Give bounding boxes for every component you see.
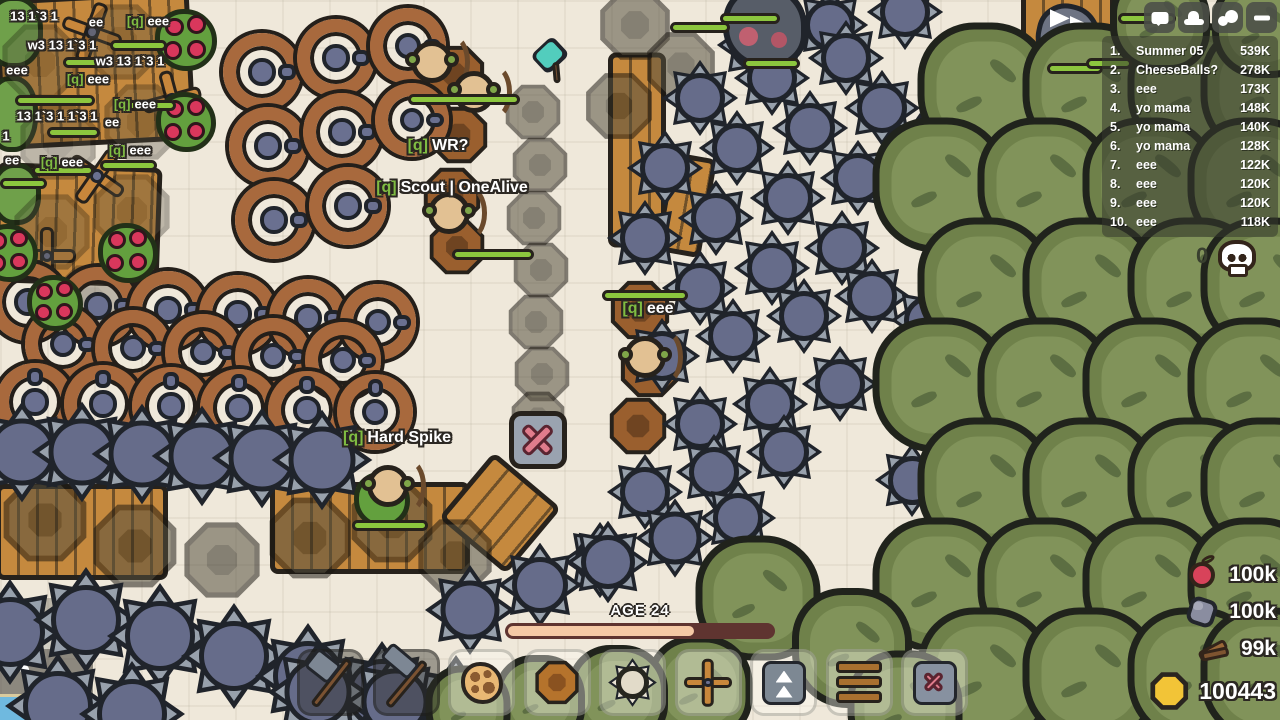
health-bar bbox=[110, 40, 167, 51]
resource-counters: 100k100k99k100443 bbox=[1149, 558, 1276, 713]
player-name-label: 1 bbox=[2, 129, 9, 144]
stone-icon bbox=[1185, 595, 1219, 629]
planks-icon bbox=[834, 659, 884, 707]
player-name-label: ee bbox=[89, 15, 103, 30]
trapx bbox=[509, 411, 567, 469]
player-name-label: [q]Hard Spike bbox=[343, 429, 451, 447]
hat-icon bbox=[1183, 9, 1205, 27]
hotbar-slot-hammer[interactable] bbox=[373, 649, 440, 716]
leaderboard-row: 3.eee173K bbox=[1110, 79, 1270, 98]
spike bbox=[697, 300, 769, 372]
resource-gold: 100443 bbox=[1149, 669, 1276, 713]
boost-icon bbox=[762, 661, 806, 705]
health-bar bbox=[0, 178, 47, 189]
gold-count: 100443 bbox=[1199, 678, 1276, 705]
woodwall-icon bbox=[534, 660, 580, 706]
axeitem bbox=[523, 33, 581, 91]
leaderboard-row: 2.CheeseBalls?278K bbox=[1110, 60, 1270, 79]
kill-count: 0 bbox=[1196, 243, 1208, 269]
hotbar-slot-spike[interactable] bbox=[599, 649, 666, 716]
player bbox=[622, 334, 668, 380]
resource-food: 100k bbox=[1185, 558, 1276, 592]
resource-wood: 99k bbox=[1197, 632, 1276, 666]
player-name-label: 13 1`3 1 1`3 1 bbox=[17, 109, 98, 124]
leaderboard-row: 6.yo mama128K bbox=[1110, 136, 1270, 155]
health-bar bbox=[720, 13, 780, 24]
player-name-label: [q]eee bbox=[109, 143, 151, 158]
player-name-label: w3 13 1`3 1 bbox=[96, 54, 165, 69]
player-name-label: ee bbox=[5, 153, 19, 168]
bush bbox=[0, 224, 38, 282]
gold-icon bbox=[1149, 671, 1189, 711]
cannon bbox=[297, 19, 375, 97]
food-count: 100k bbox=[1229, 563, 1276, 587]
health-bar bbox=[743, 58, 800, 69]
cannon bbox=[229, 107, 307, 185]
leaderboard-row: 9.eee120K bbox=[1110, 193, 1270, 212]
player bbox=[365, 463, 411, 509]
health-bar bbox=[670, 22, 730, 33]
hotbar-slot-xtrap[interactable] bbox=[901, 649, 968, 716]
skull-icon bbox=[1218, 240, 1256, 272]
age-label: AGE 24 bbox=[505, 602, 775, 619]
health-bar bbox=[352, 520, 428, 531]
player bbox=[409, 39, 455, 85]
health-bar bbox=[47, 127, 100, 138]
food-icon bbox=[1185, 558, 1219, 592]
player-name-label: [q]eee bbox=[41, 155, 83, 170]
spike bbox=[748, 416, 820, 488]
age-bar bbox=[505, 623, 775, 639]
ghex bbox=[507, 293, 565, 351]
clan-button[interactable] bbox=[1212, 2, 1243, 33]
hotbar-slot-cookie[interactable] bbox=[448, 649, 515, 716]
bush bbox=[98, 223, 158, 283]
player-name-label: ee bbox=[105, 115, 119, 130]
player-name-label: 13 1`3 1 bbox=[10, 9, 58, 24]
player-name-label: [q]WR? bbox=[408, 137, 469, 155]
health-bar bbox=[408, 94, 520, 105]
minimize-leaderboard-button[interactable] bbox=[1246, 2, 1277, 33]
age-bar-fill bbox=[508, 626, 694, 636]
stone-count: 100k bbox=[1229, 600, 1276, 624]
spike bbox=[768, 280, 840, 352]
hammer-icon bbox=[374, 651, 438, 715]
wood-count: 99k bbox=[1241, 637, 1276, 661]
player-name-label: eee bbox=[6, 63, 28, 78]
cannon bbox=[223, 33, 301, 111]
leaderboard-row: 10.eee118K bbox=[1110, 212, 1270, 231]
kill-counter: 0 bbox=[1196, 240, 1256, 272]
player-name-label: [q]Scout | OneAlive bbox=[376, 179, 528, 197]
whex bbox=[608, 396, 668, 456]
hotbar-slot-boost[interactable] bbox=[750, 649, 817, 716]
axe-icon bbox=[300, 652, 362, 714]
cannon bbox=[235, 181, 313, 259]
leaderboard: 1.Summer 05539K2.CheeseBalls?278K3.eee17… bbox=[1102, 36, 1278, 237]
game-viewport: [q]WR?[q]Scout | OneAlive[q]eee[q]Hard S… bbox=[0, 0, 1280, 720]
age-progress: AGE 24 bbox=[505, 602, 775, 639]
spike-icon bbox=[610, 660, 656, 706]
player-name-label: [q]eee bbox=[114, 97, 156, 112]
spike bbox=[804, 348, 876, 420]
player-name-label: [q]eee bbox=[127, 14, 169, 29]
hats-button[interactable] bbox=[1178, 2, 1209, 33]
spike bbox=[569, 523, 647, 601]
health-bar bbox=[452, 249, 534, 260]
cookie-icon bbox=[461, 662, 503, 704]
hotbar-slot-axe[interactable] bbox=[297, 649, 364, 716]
hotbar-slot-windmill[interactable] bbox=[675, 649, 742, 716]
leaderboard-row: 8.eee120K bbox=[1110, 174, 1270, 193]
player-name-label: w3 13 1`3 1 bbox=[28, 38, 97, 53]
xtrap-icon bbox=[913, 661, 957, 705]
hotbar-slot-planks[interactable] bbox=[826, 649, 893, 716]
chat-icon bbox=[1151, 12, 1168, 24]
windmill-icon bbox=[684, 659, 732, 707]
health-bar bbox=[100, 160, 157, 171]
player-name-label: [q]eee bbox=[622, 300, 673, 318]
player bbox=[451, 69, 497, 115]
wood-icon bbox=[1197, 632, 1231, 666]
player-name-label: [q]eee bbox=[67, 72, 109, 87]
cannon bbox=[303, 93, 381, 171]
health-bar bbox=[15, 95, 95, 106]
min-icon bbox=[1254, 15, 1270, 20]
leaderboard-row: 5.yo mama140K bbox=[1110, 117, 1270, 136]
ghex bbox=[504, 83, 562, 141]
spike bbox=[82, 664, 182, 720]
resource-stone: 100k bbox=[1185, 595, 1276, 629]
leaderboard-row: 4.yo mama148K bbox=[1110, 98, 1270, 117]
hotbar-slot-woodwall[interactable] bbox=[524, 649, 591, 716]
clan-icon bbox=[1217, 9, 1239, 27]
chat-button[interactable] bbox=[1144, 2, 1175, 33]
leaderboard-row: 7.eee122K bbox=[1110, 155, 1270, 174]
bush bbox=[27, 275, 83, 331]
ghex bbox=[505, 189, 563, 247]
leaderboard-row: 1.Summer 05539K bbox=[1110, 41, 1270, 60]
